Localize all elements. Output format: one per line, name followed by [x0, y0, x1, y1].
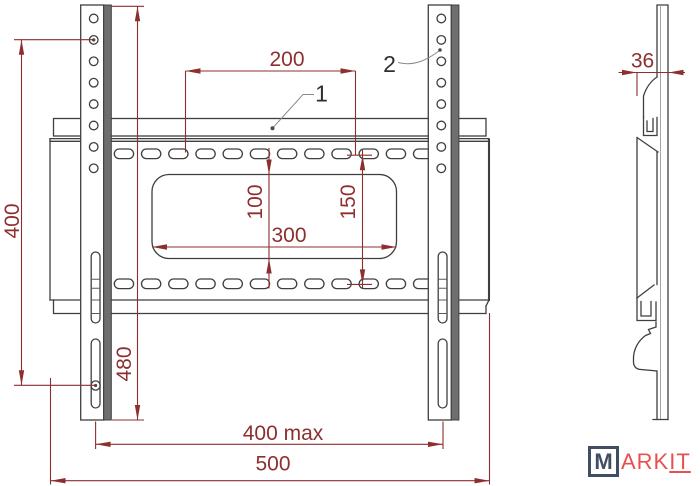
top-hook-outer	[644, 117, 658, 136]
top-bend	[644, 77, 658, 117]
dim-max-width-400: 400 max	[96, 422, 443, 450]
rail-flange	[451, 5, 459, 420]
tv-rail-left	[81, 5, 112, 420]
bottom-bend	[634, 322, 658, 420]
dim-cutout-height-100: 100	[244, 148, 272, 289]
technical-drawing: 400 480 200 100 150 300 400 max	[0, 0, 700, 486]
dim-rail-height-480: 480	[112, 6, 145, 420]
part-label-1-text: 1	[315, 81, 328, 107]
drawing-canvas: 400 480 200 100 150 300 400 max	[0, 0, 700, 486]
bottom-hook-inner	[641, 302, 651, 317]
bottom-hook-outer	[637, 298, 656, 321]
dim-text-400: 400	[1, 203, 24, 238]
dim-text-500: 500	[255, 453, 290, 476]
plate-top-fold-lines	[50, 139, 489, 142]
dim-text-300: 300	[271, 224, 306, 247]
slot-row-bottom	[114, 279, 433, 289]
dim-plate-width-500: 500	[51, 313, 490, 485]
dim-text-36: 36	[631, 50, 654, 73]
plate-bottom-edge	[50, 300, 489, 306]
dim-depth-36: 36	[619, 50, 686, 97]
plate-bottom-lip	[54, 300, 487, 314]
slot-row-top	[114, 149, 433, 159]
rail-flange	[104, 5, 112, 420]
dim-text-200: 200	[269, 48, 304, 71]
part-label-2-text: 2	[383, 51, 396, 77]
tv-rail-right	[428, 5, 459, 420]
rail-face	[428, 5, 451, 420]
dim-text-100: 100	[244, 184, 267, 219]
dim-row-spacing-150: 150	[337, 150, 372, 289]
plate-top-lip	[54, 119, 487, 137]
dim-cutout-width-300: 300	[152, 224, 397, 250]
rail-strip-outline	[657, 5, 668, 420]
logo-text-underlined: IT	[669, 449, 691, 474]
part-label-1: 1	[271, 81, 328, 131]
dim-text-400max: 400 max	[243, 422, 324, 445]
dim-hole-spacing-200: 200	[186, 48, 356, 156]
logo-m-box: M	[588, 446, 619, 477]
lower-transition	[637, 285, 654, 298]
logo-text: ARK	[621, 449, 669, 474]
dim-text-150: 150	[337, 184, 360, 219]
dim-text-480: 480	[113, 346, 136, 381]
plate-back-face	[637, 138, 658, 299]
logo-wordmark: ARKIT	[621, 449, 691, 475]
top-hook-inner	[647, 119, 653, 132]
brand-logo: M ARKIT	[588, 446, 691, 477]
